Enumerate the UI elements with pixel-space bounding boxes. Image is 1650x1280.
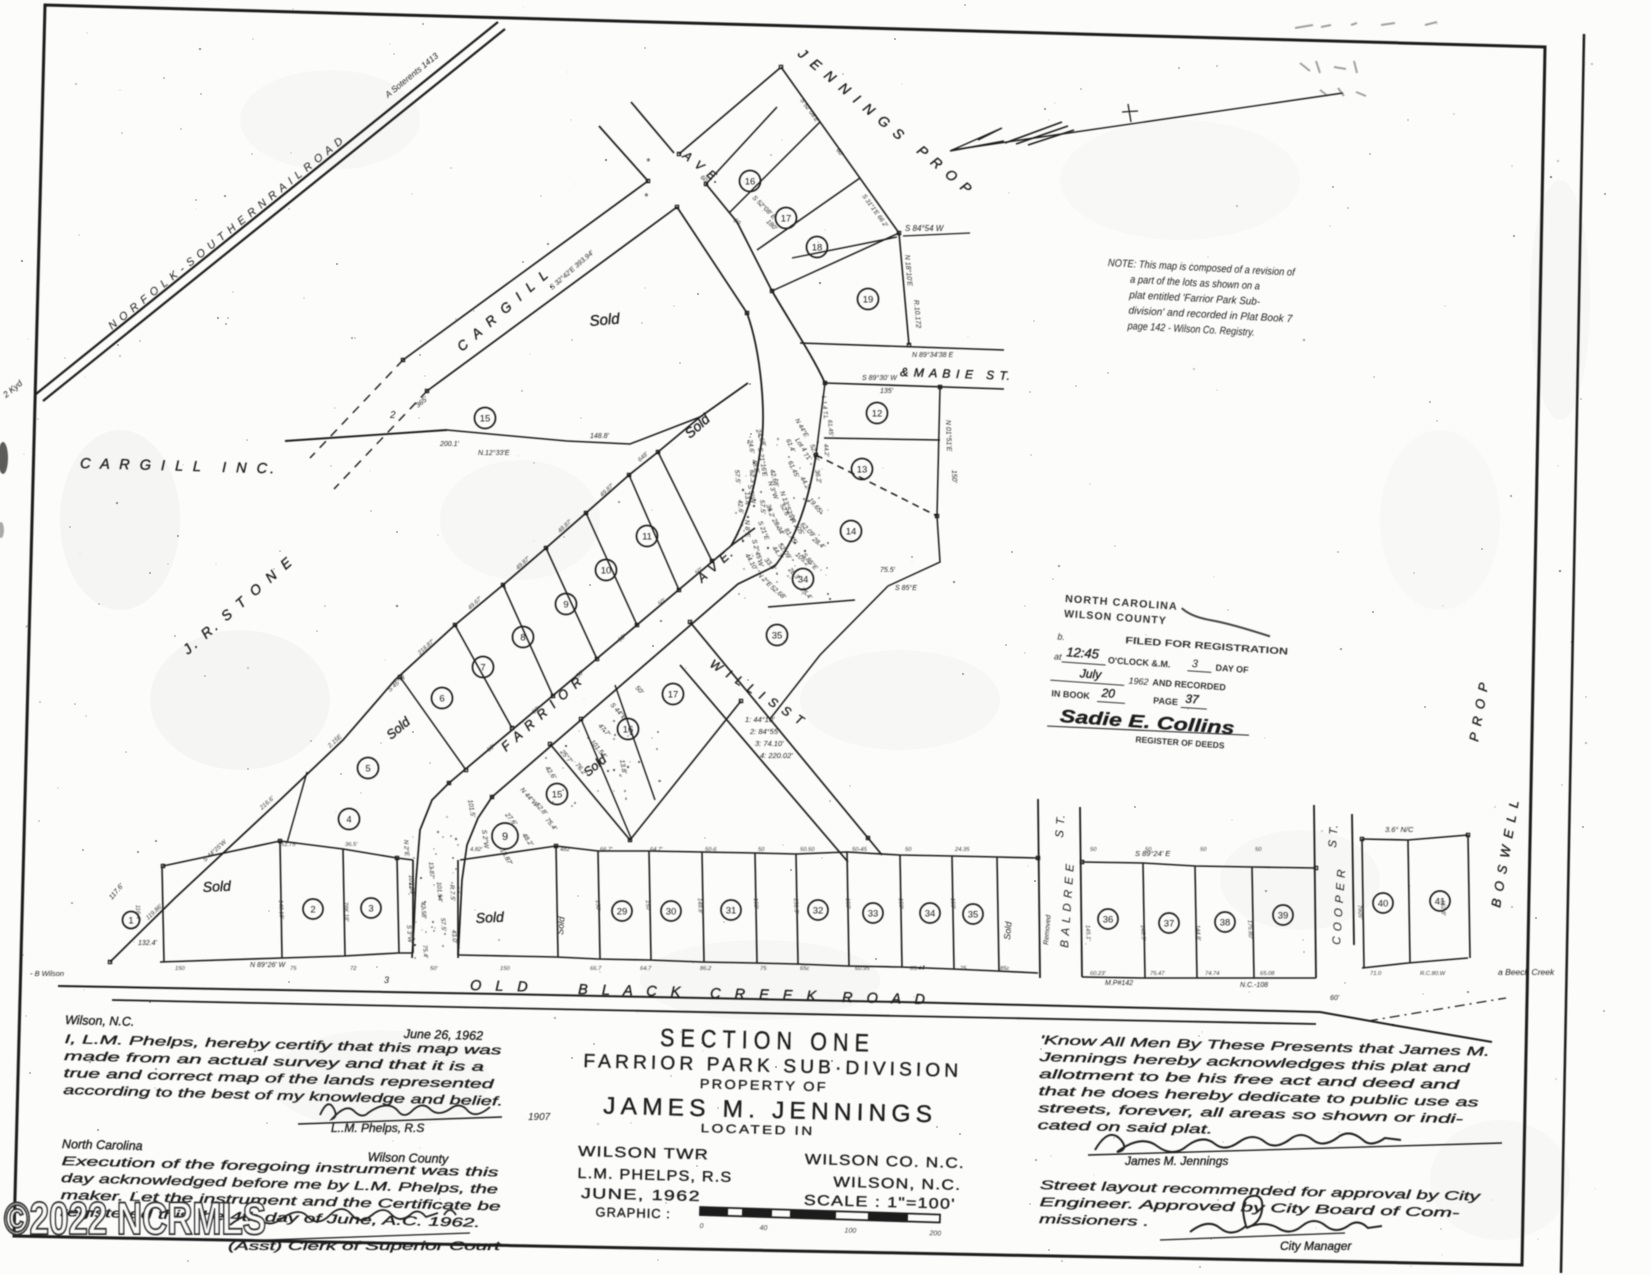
svg-text:36: 36 [1103, 914, 1114, 925]
svg-text:James M. Jennings: James M. Jennings [1124, 1154, 1228, 1168]
svg-text:150': 150' [897, 898, 904, 910]
svg-text:36.5': 36.5' [345, 842, 358, 848]
svg-text:N.C.-108: N.C.-108 [1240, 982, 1268, 989]
svg-text:50: 50 [1200, 847, 1207, 853]
svg-text:60': 60' [1330, 995, 1340, 1002]
svg-text:64.7': 64.7' [650, 847, 663, 853]
svg-text:100: 100 [844, 1228, 856, 1235]
svg-text:Sold: Sold [1002, 920, 1014, 940]
svg-text:116.4': 116.4' [134, 905, 141, 921]
svg-text:1907: 1907 [528, 1112, 551, 1123]
svg-text:N 89°34'38 E: N 89°34'38 E [912, 351, 953, 359]
svg-text:12: 12 [872, 408, 883, 419]
svg-text:13.87': 13.87' [427, 862, 435, 880]
svg-text:148.5': 148.5' [1139, 925, 1146, 942]
svg-text:6: 6 [439, 693, 444, 704]
svg-text:140.18': 140.18' [277, 900, 284, 920]
svg-text:72: 72 [350, 966, 357, 972]
svg-text:17: 17 [668, 689, 679, 700]
svg-text:S T.: S T. [1327, 823, 1341, 848]
svg-text:148.8': 148.8' [590, 433, 610, 440]
svg-text:4: 4 [346, 814, 351, 825]
svg-text:at: at [1054, 651, 1063, 662]
svg-text:85c: 85c [1000, 966, 1009, 972]
svg-text:R O A D: R O A D [842, 990, 930, 1008]
svg-text:31: 31 [726, 905, 737, 916]
svg-text:R.7.5': R.7.5' [448, 885, 456, 902]
svg-text:3: 3 [368, 903, 373, 914]
svg-text:78K.18': 78K.18' [342, 902, 349, 923]
svg-text:a Beech Creek: a Beech Creek [1498, 967, 1555, 977]
svg-text:32: 32 [813, 905, 824, 916]
svg-text:S T.: S T. [1054, 813, 1068, 838]
svg-text:29: 29 [617, 906, 628, 917]
svg-text:75: 75 [760, 966, 767, 972]
svg-text:150': 150' [644, 900, 651, 912]
svg-text:S 89°24' E: S 89°24' E [1135, 849, 1171, 858]
svg-text:145.1': 145.1' [1084, 925, 1091, 942]
svg-text:I N C.: I N C. [222, 460, 277, 477]
svg-text:S 89°30' W: S 89°30' W [862, 374, 898, 382]
svg-text:20: 20 [1100, 686, 1116, 701]
svg-text:10: 10 [601, 565, 612, 576]
svg-text:150': 150' [950, 470, 957, 484]
svg-text:N 01°51'E: N 01°51'E [944, 420, 953, 452]
svg-text:1962: 1962 [1128, 676, 1149, 687]
svg-text:North Carolina: North Carolina [62, 1137, 143, 1153]
svg-text:50: 50 [758, 847, 765, 853]
svg-text:135': 135' [880, 388, 894, 395]
svg-text:50': 50' [430, 966, 438, 972]
svg-text:15: 15 [480, 413, 491, 424]
svg-text:152.8': 152.8' [1439, 900, 1446, 917]
svg-text:103.69': 103.69' [407, 875, 415, 896]
svg-text:1: 1 [128, 915, 133, 926]
svg-text:148.8': 148.8' [696, 898, 703, 915]
svg-text:9: 9 [563, 599, 568, 610]
svg-text:65.08: 65.08 [1260, 971, 1275, 977]
svg-text:200.1': 200.1' [439, 441, 460, 448]
svg-text:S 84°54 W: S 84°54 W [905, 224, 945, 233]
svg-text:S T.: S T. [986, 368, 1011, 383]
svg-text:175.80': 175.80' [1246, 920, 1253, 940]
svg-text:July: July [1078, 666, 1102, 682]
svg-text:SECTION ONE: SECTION ONE [660, 1024, 876, 1058]
svg-text:60.95: 60.95 [855, 966, 870, 972]
svg-text:75: 75 [290, 966, 297, 972]
svg-text:30: 30 [666, 906, 677, 917]
svg-text:Sold: Sold [475, 908, 505, 926]
svg-text:©2022 NCRMLS: ©2022 NCRMLS [4, 1193, 266, 1244]
svg-text:8: 8 [520, 632, 525, 643]
svg-text:132.4': 132.4' [138, 940, 158, 947]
svg-text:19: 19 [863, 294, 874, 305]
svg-text:B L A C K: B L A C K [578, 982, 686, 1001]
svg-text:50: 50 [1255, 847, 1262, 853]
svg-text:2: 84°55': 2: 84°55' [749, 727, 780, 736]
svg-text:14: 14 [846, 526, 857, 537]
svg-text:5: 5 [365, 763, 370, 774]
svg-text:PAGE: PAGE [1153, 695, 1178, 707]
svg-text:S 85°E: S 85°E [895, 584, 917, 592]
svg-text:Sold: Sold [202, 877, 232, 895]
svg-text:39: 39 [1278, 910, 1289, 921]
svg-text:O L D: O L D [470, 978, 533, 996]
svg-text:51.75': 51.75' [281, 842, 298, 848]
svg-text:74.74: 74.74 [1205, 971, 1220, 977]
svg-text:34: 34 [925, 908, 936, 919]
svg-text:15: 15 [552, 789, 563, 800]
svg-text:Sold: Sold [555, 915, 567, 935]
svg-text:WILSON TWR: WILSON TWR [578, 1144, 709, 1163]
svg-text:150: 150 [500, 966, 510, 972]
svg-text:75.47: 75.47 [1150, 971, 1165, 977]
svg-text:17: 17 [781, 213, 792, 224]
svg-text:3: 3 [384, 975, 389, 985]
svg-text:43.0': 43.0' [450, 930, 458, 944]
svg-text:S 3°W: S 3°W [405, 925, 413, 944]
svg-text:151.3': 151.3' [792, 898, 799, 915]
svg-text:65.44: 65.44 [910, 966, 925, 972]
svg-text:50: 50 [1090, 847, 1097, 853]
svg-text:101.54': 101.54' [435, 882, 443, 903]
svg-text:M.P#142: M.P#142 [1105, 980, 1133, 987]
svg-text:144.8': 144.8' [1194, 925, 1201, 942]
svg-text:86.2: 86.2 [700, 966, 712, 972]
svg-text:38: 38 [1220, 917, 1231, 928]
svg-text:0: 0 [699, 1223, 703, 1230]
svg-text:42.58': 42.58' [419, 902, 427, 920]
svg-text:& M A B I E: & M A B I E [900, 365, 974, 382]
svg-text:50-6: 50-6 [705, 847, 717, 853]
svg-text:40: 40 [1378, 898, 1389, 909]
svg-text:34: 34 [798, 574, 809, 585]
svg-text:37: 37 [1185, 692, 1201, 707]
svg-text:4.82': 4.82' [470, 847, 483, 853]
svg-text:71.0: 71.0 [1370, 971, 1382, 977]
svg-text:12:45: 12:45 [1066, 644, 1100, 661]
svg-text:40: 40 [759, 1225, 767, 1232]
svg-text:R.C.80.W: R.C.80.W [1420, 971, 1446, 977]
svg-text:C R E E K: C R E E K [710, 986, 821, 1005]
svg-text:L..M. Phelps, R.S: L..M. Phelps, R.S [331, 1121, 424, 1135]
svg-text:2: 2 [389, 410, 396, 421]
svg-text:150': 150' [752, 898, 759, 910]
svg-text:GRAPHIC :: GRAPHIC : [595, 1204, 671, 1221]
svg-text:N 2°E: N 2°E [402, 840, 410, 858]
svg-text:50: 50 [905, 847, 912, 853]
svg-text:City Manager: City Manager [1280, 1239, 1352, 1253]
svg-text:35: 35 [772, 630, 783, 641]
svg-text:66.7: 66.7 [590, 966, 602, 972]
svg-text:3: 74.10': 3: 74.10' [755, 739, 784, 748]
svg-text:150': 150' [594, 900, 601, 912]
svg-text:64.7: 64.7 [640, 966, 652, 972]
svg-text:JUNE, 1962: JUNE, 1962 [581, 1186, 701, 1205]
svg-text:missioners .: missioners . [1039, 1212, 1149, 1229]
svg-text:Wilson, N.C.: Wilson, N.C. [65, 1013, 135, 1029]
svg-text:- B Wilson: - B Wilson [30, 969, 64, 978]
svg-text:1: 44°10': 1: 44°10' [745, 715, 775, 724]
svg-text:LOCATED IN: LOCATED IN [701, 1121, 815, 1138]
svg-text:60.23': 60.23' [1090, 971, 1107, 977]
svg-text:C A R G I L L: C A R G I L L [80, 456, 204, 475]
svg-text:57.5': 57.5' [439, 918, 447, 932]
svg-text:N.12°33'E: N.12°33'E [478, 449, 510, 457]
svg-text:16: 16 [745, 176, 756, 187]
svg-text:Sold: Sold [589, 310, 621, 330]
svg-text:2: 2 [310, 904, 315, 915]
svg-text:44.2': 44.2' [822, 444, 829, 458]
svg-text:50.50: 50.50 [800, 847, 815, 853]
svg-text:N 89°26' W: N 89°26' W [250, 961, 287, 969]
svg-text:11: 11 [642, 531, 652, 542]
svg-text:150': 150' [844, 898, 851, 910]
svg-text:37: 37 [1164, 918, 1175, 929]
svg-text:42.6': 42.6' [736, 500, 744, 515]
svg-text:7: 7 [480, 662, 485, 673]
svg-text:WILSON, N.C.: WILSON, N.C. [833, 1175, 961, 1194]
svg-text:150: 150 [175, 966, 185, 972]
svg-text:75.4': 75.4' [421, 945, 429, 959]
svg-text:57.5': 57.5' [733, 470, 741, 485]
svg-text:16: 16 [623, 724, 634, 735]
svg-text:4: 220.02': 4: 220.02' [760, 751, 793, 760]
svg-text:65c: 65c [800, 966, 809, 972]
svg-text:50-45: 50-45 [852, 847, 868, 853]
svg-text:150': 150' [949, 898, 956, 910]
svg-text:9: 9 [502, 831, 508, 843]
svg-text:b.: b. [1057, 632, 1065, 642]
svg-text:7#05': 7#05' [1356, 905, 1363, 920]
svg-text:35: 35 [968, 909, 979, 920]
svg-text:33: 33 [868, 908, 879, 919]
svg-text:75: 75 [960, 966, 967, 972]
svg-text:75.5': 75.5' [880, 567, 896, 574]
svg-text:66.7': 66.7' [600, 847, 613, 853]
svg-text:482': 482' [560, 847, 572, 853]
svg-text:3.6° N/C: 3.6° N/C [1385, 825, 1414, 834]
svg-text:13: 13 [857, 464, 868, 475]
svg-text:24.35: 24.35 [954, 847, 970, 853]
svg-text:200: 200 [928, 1230, 941, 1237]
svg-text:(Asst) Clerk of Superior Court: (Asst) Clerk of Superior Court [228, 1239, 501, 1253]
